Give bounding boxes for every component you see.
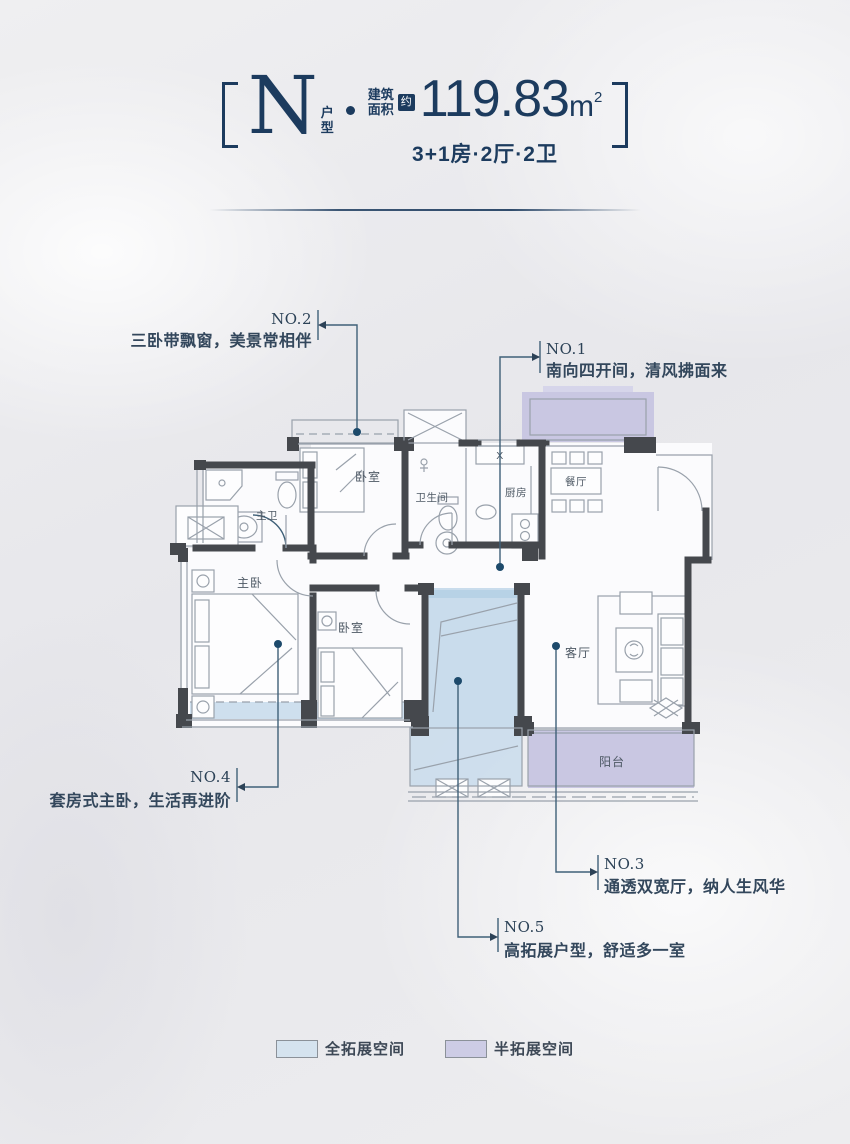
annotation-no3-tag: NO.3 — [604, 855, 645, 873]
full-expand-bay-top — [292, 420, 398, 443]
room-label-bedroom-top: 卧室 — [355, 469, 381, 484]
annotation-no2: NO.2 三卧带飘窗，美景常相伴 — [130, 310, 361, 436]
legend-item-half-expand: 半拓展空间 — [445, 1038, 574, 1059]
full-expand-room-window — [429, 590, 517, 598]
annotation-no5-tag: NO.5 — [504, 918, 545, 936]
room-label-master-bath: 主卫 — [256, 510, 278, 522]
room-label-master-bedroom: 主卧 — [237, 576, 263, 590]
legend-label-full-expand: 全拓展空间 — [325, 1038, 405, 1059]
annotation-no2-tag: NO.2 — [271, 310, 312, 328]
room-label-living: 客厅 — [565, 645, 591, 660]
full-expand-lower — [410, 728, 522, 786]
room-label-bathroom: 卫生间 — [416, 491, 449, 504]
legend: 全拓展空间 半拓展空间 — [0, 1038, 850, 1059]
room-label-balcony: 阳台 — [599, 754, 625, 769]
annotation-no1-text: 南向四开间，清风拂面来 — [546, 361, 728, 380]
room-label-kitchen: 厨房 — [505, 486, 527, 499]
full-expand-room — [425, 588, 521, 728]
legend-label-half-expand: 半拓展空间 — [494, 1038, 574, 1059]
floorplan-svg: 卧室 卫生间 厨房 餐厅 主卫 主卧 卧室 客厅 阳台 X NO.2 三卧带飘窗… — [0, 0, 850, 1144]
annotation-no1-tag: NO.1 — [546, 340, 587, 358]
annotation-no2-text: 三卧带飘窗，美景常相伴 — [130, 331, 312, 350]
left-bay-window — [176, 506, 238, 546]
annotation-no3-text: 通透双宽厅，纳人生风华 — [604, 877, 786, 896]
room-label-dining: 餐厅 — [565, 475, 587, 488]
annotation-no4-text: 套房式主卧，生活再进阶 — [48, 791, 231, 810]
annotation-no4-tag: NO.4 — [190, 768, 231, 786]
room-label-bedroom-mid: 卧室 — [338, 620, 364, 635]
floorplan-page: N 户 型 建筑 面积 约 119.83m2 3+1房·2厅·2卫 — [0, 0, 850, 1144]
annotation-no5-text: 高拓展户型，舒适多一室 — [504, 941, 686, 960]
legend-item-full-expand: 全拓展空间 — [276, 1038, 405, 1059]
legend-swatch-half-expand — [445, 1040, 487, 1058]
legend-swatch-full-expand — [276, 1040, 318, 1058]
